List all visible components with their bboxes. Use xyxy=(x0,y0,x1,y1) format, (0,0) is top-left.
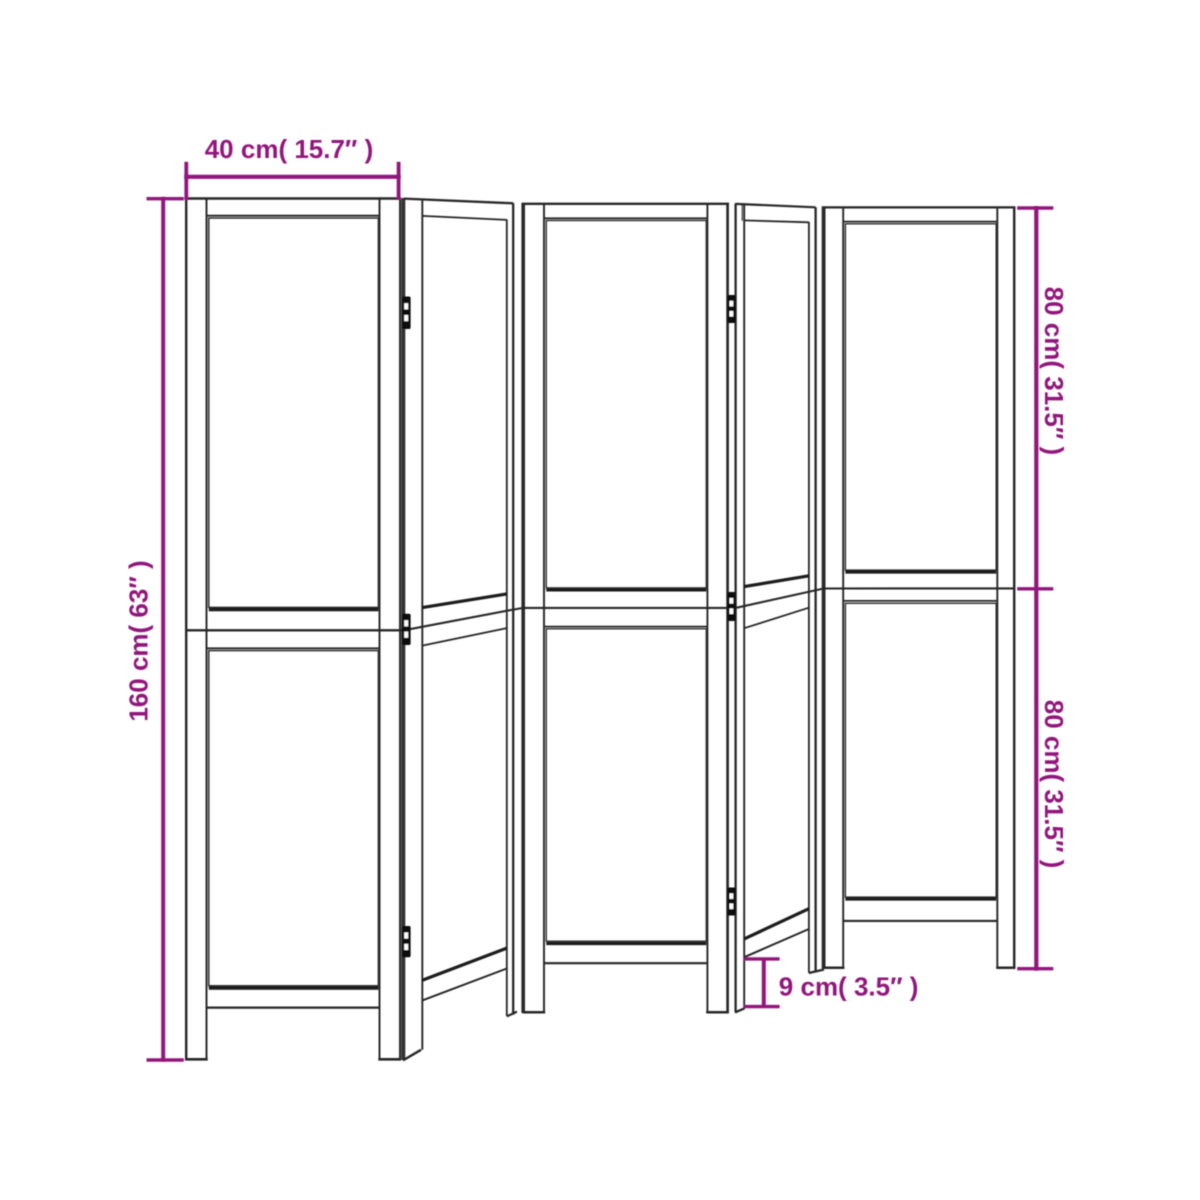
svg-text:160 cm( 63″ ): 160 cm( 63″ ) xyxy=(123,560,153,721)
svg-text:80 cm( 31.5″ ): 80 cm( 31.5″ ) xyxy=(1039,700,1069,869)
svg-text:80 cm( 31.5″ ): 80 cm( 31.5″ ) xyxy=(1039,287,1069,456)
svg-text:40 cm( 15.7″ ): 40 cm( 15.7″ ) xyxy=(205,134,374,164)
svg-text:9 cm( 3.5″ ): 9 cm( 3.5″ ) xyxy=(779,971,919,1001)
